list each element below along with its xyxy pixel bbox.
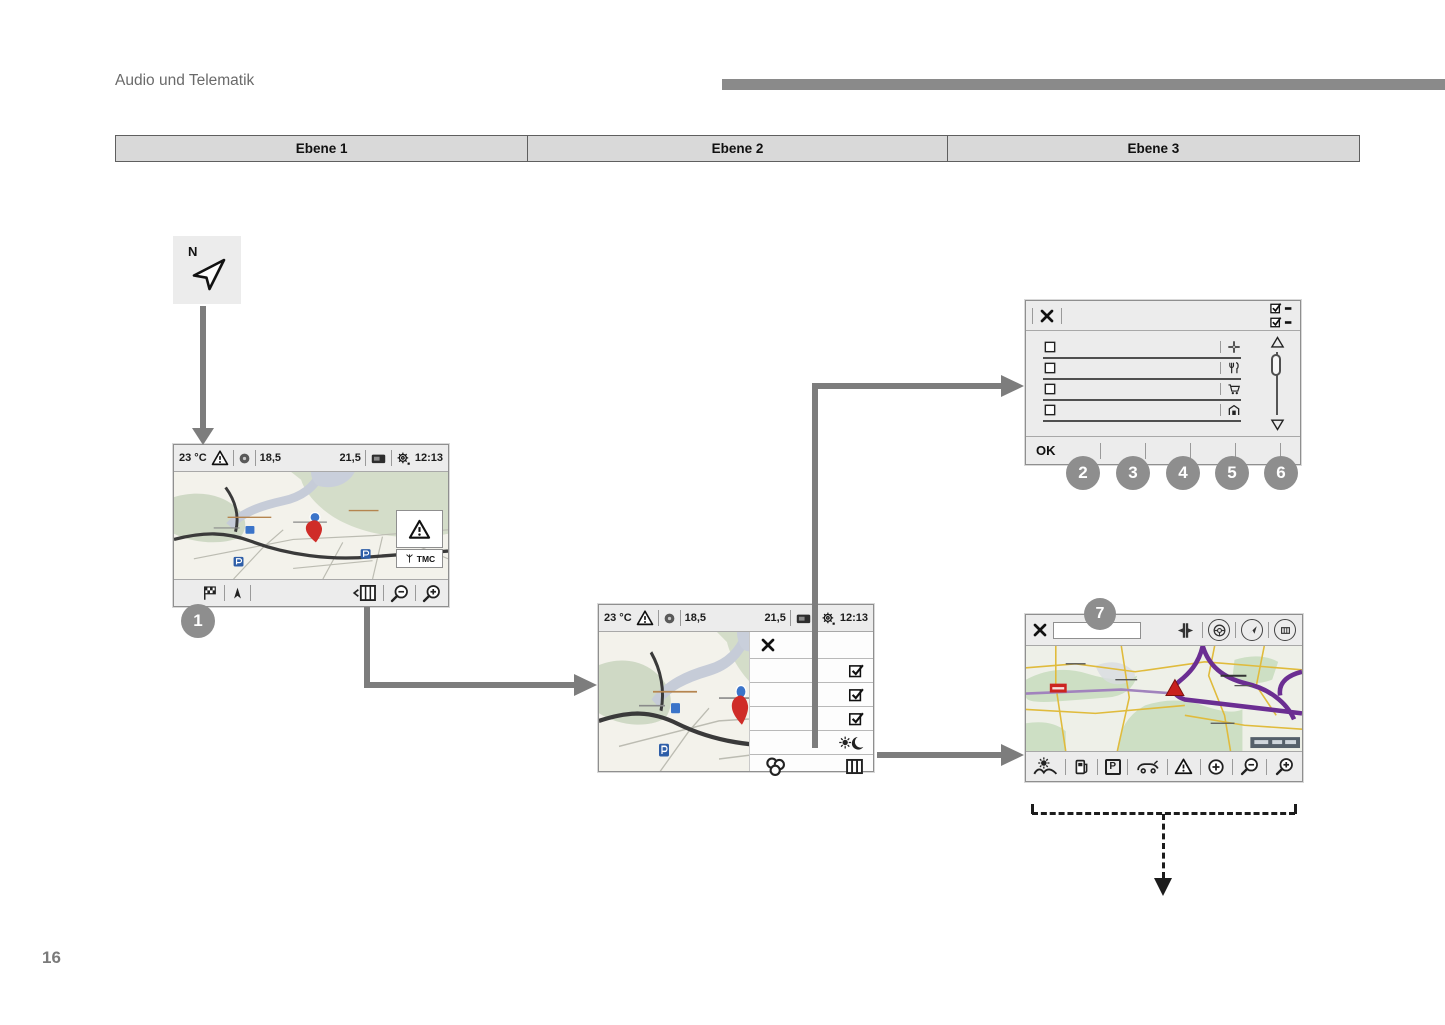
divider (1202, 622, 1203, 638)
arrowhead-right (1001, 744, 1024, 766)
status-bar: 23 °C 18,5 21,5 12:13 (174, 445, 448, 472)
checked-option-icon (848, 710, 865, 727)
page-number: 16 (42, 948, 61, 968)
header-rule (722, 79, 1445, 90)
poi-row[interactable] (1043, 399, 1241, 422)
scenic-poi-icon[interactable] (1033, 756, 1059, 777)
compass-needle-icon (189, 252, 229, 292)
clock-value: 12:13 (840, 612, 868, 624)
scroll-thumb[interactable] (1271, 354, 1281, 376)
scroll-down-icon[interactable] (1269, 417, 1286, 432)
divider (1097, 759, 1098, 775)
list-view-icon[interactable] (844, 756, 865, 777)
level-header-ebene-2: Ebene 2 (527, 136, 946, 161)
parking-label: P (1109, 761, 1116, 772)
traffic-warning-overlay[interactable] (396, 510, 443, 548)
left-temp-value: 18,5 (260, 452, 281, 464)
divider (1220, 383, 1221, 395)
divider (1167, 759, 1168, 775)
temperature-value: 23 °C (604, 612, 632, 624)
arrow-screen1-down (364, 607, 370, 685)
divider (255, 450, 256, 466)
poi-list (1026, 331, 1300, 436)
navigation-arrow-icon (1244, 622, 1261, 639)
divider (1061, 308, 1062, 324)
callout-6: 6 (1264, 456, 1298, 490)
poi-row[interactable] (1043, 336, 1241, 359)
level-header-ebene-3: Ebene 3 (947, 136, 1359, 161)
warning-icon (211, 449, 229, 467)
nav-screen-1: 23 °C 18,5 21,5 12:13 TMC (173, 444, 449, 607)
media-icon (795, 610, 812, 627)
restaurant-icon (1227, 361, 1241, 375)
map-view[interactable] (1026, 646, 1302, 751)
arrowhead-right (574, 674, 597, 696)
panel-footer: OK (1026, 436, 1300, 464)
destination-flag-icon[interactable] (201, 584, 219, 602)
divider (1190, 443, 1191, 459)
left-temp-value: 18,5 (685, 612, 706, 624)
divider (1220, 404, 1221, 416)
divider (1232, 759, 1233, 775)
map-options-menu (749, 632, 873, 771)
divider (250, 585, 251, 601)
callout-5: 5 (1215, 456, 1249, 490)
divider (658, 610, 659, 626)
checkbox-icon[interactable] (1043, 361, 1057, 375)
checkbox-icon[interactable] (1043, 340, 1057, 354)
divider (415, 585, 416, 601)
callout-1: 1 (181, 604, 215, 638)
zoom-out-icon[interactable] (389, 583, 410, 604)
section-title: Audio und Telematik (115, 72, 254, 90)
cd-icon (663, 612, 676, 625)
navigation-map (599, 632, 749, 771)
car-services-icon[interactable] (1135, 757, 1161, 776)
dashed-bracket-right-tick (1294, 804, 1297, 814)
zoom-out-icon[interactable] (1239, 756, 1260, 777)
divider (1145, 443, 1146, 459)
divider (224, 585, 225, 601)
callout-2: 2 (1066, 456, 1100, 490)
divider (1127, 759, 1128, 775)
right-temp-value: 21,5 (339, 452, 360, 464)
divider (1200, 759, 1201, 775)
add-icon[interactable] (1207, 758, 1225, 776)
checkbox-icon[interactable] (1043, 382, 1057, 396)
arrowhead-right (1001, 375, 1024, 397)
map-header-bar (1026, 615, 1302, 646)
status-bar: 23 °C 18,5 21,5 12:13 (599, 605, 873, 632)
divider (1065, 759, 1066, 775)
clock-value: 12:13 (415, 452, 443, 464)
callout-7: 7 (1084, 598, 1116, 630)
grid-view-icon (1277, 622, 1294, 639)
divider (1266, 759, 1267, 775)
ok-button[interactable]: OK (1036, 443, 1056, 458)
scrollbar[interactable] (1264, 335, 1290, 432)
close-icon[interactable] (760, 637, 776, 653)
poi-row[interactable] (1043, 378, 1241, 401)
panel-header (1026, 301, 1300, 331)
hotel-icon (1227, 403, 1241, 417)
dashed-arrowhead (1154, 878, 1172, 896)
overview-map (1026, 646, 1302, 751)
zoom-in-icon[interactable] (1274, 756, 1295, 777)
service-cross-icon (1227, 340, 1241, 354)
poi-toolbar: P (1026, 751, 1302, 781)
close-icon[interactable] (1039, 308, 1055, 324)
dashed-continuation-line (1162, 814, 1165, 878)
divider (1100, 443, 1101, 459)
divider (1032, 308, 1033, 324)
cd-icon (238, 452, 251, 465)
arrow-compass-to-screen1 (200, 306, 206, 430)
select-all-icon (1268, 302, 1294, 315)
arrow-screen2-to-screen3 (877, 752, 1003, 758)
guidance-button[interactable] (1208, 619, 1230, 641)
tmc-label: TMC (417, 554, 435, 564)
divider (365, 450, 366, 466)
levels-table: Ebene 1 Ebene 2 Ebene 3 (115, 135, 1360, 162)
map-mode-button[interactable] (1274, 619, 1296, 641)
arrowhead-down (192, 428, 214, 445)
map-toolbar (174, 579, 448, 606)
divider (1268, 622, 1269, 638)
manual-page: Audio und Telematik Ebene 1 Ebene 2 Eben… (0, 0, 1445, 1025)
media-icon (370, 450, 387, 467)
nav-screen-3: P (1025, 614, 1303, 782)
scroll-track[interactable] (1276, 352, 1278, 415)
map-view[interactable] (599, 632, 749, 771)
divider (680, 610, 681, 626)
settings-gear-icon (396, 451, 411, 466)
close-icon[interactable] (1032, 622, 1048, 638)
compass-tile: N (173, 236, 241, 304)
north-arrow-icon[interactable] (230, 586, 245, 601)
divider (383, 585, 384, 601)
arrow-to-poi-panel (812, 383, 1003, 389)
nav-screen-2: 23 °C 18,5 21,5 12:13 (598, 604, 874, 772)
arrow-screen1-to-screen2 (364, 682, 576, 688)
checked-option-icon (848, 662, 865, 679)
warning-icon (408, 518, 431, 541)
divider (1220, 362, 1221, 374)
warning-icon (636, 609, 654, 627)
checkbox-icon[interactable] (1043, 403, 1057, 417)
checked-option-icon (848, 686, 865, 703)
steering-wheel-icon (1211, 622, 1228, 639)
divider (391, 450, 392, 466)
motorway-junction-icon[interactable] (1174, 621, 1197, 640)
scroll-up-icon[interactable] (1269, 335, 1286, 350)
shopping-icon (1227, 382, 1241, 396)
poi-categories-icon[interactable] (764, 755, 787, 778)
poi-selection-panel: OK (1025, 300, 1301, 465)
sun-moon-icon (838, 733, 865, 752)
antenna-icon (404, 553, 415, 564)
divider (790, 610, 791, 626)
right-temp-value: 21,5 (764, 612, 785, 624)
callout-3: 3 (1116, 456, 1150, 490)
temperature-value: 23 °C (179, 452, 207, 464)
poi-row[interactable] (1043, 357, 1241, 380)
divider (233, 450, 234, 466)
zoom-in-icon[interactable] (421, 583, 442, 604)
map-view[interactable]: TMC (174, 472, 448, 579)
navigate-button[interactable] (1241, 619, 1263, 641)
select-all-controls[interactable] (1268, 302, 1294, 329)
parking-icon[interactable]: P (1105, 759, 1121, 775)
settings-gear-icon (821, 611, 836, 626)
divider (1220, 341, 1221, 353)
arrow-screen2-up (812, 386, 818, 748)
hazard-icon[interactable] (1174, 757, 1193, 776)
level-header-ebene-1: Ebene 1 (116, 136, 527, 161)
map-pages-icon[interactable] (352, 583, 378, 603)
callout-4: 4 (1166, 456, 1200, 490)
tmc-overlay[interactable]: TMC (396, 549, 443, 568)
fuel-station-icon[interactable] (1073, 758, 1091, 776)
deselect-all-icon (1268, 316, 1294, 329)
divider (1235, 622, 1236, 638)
